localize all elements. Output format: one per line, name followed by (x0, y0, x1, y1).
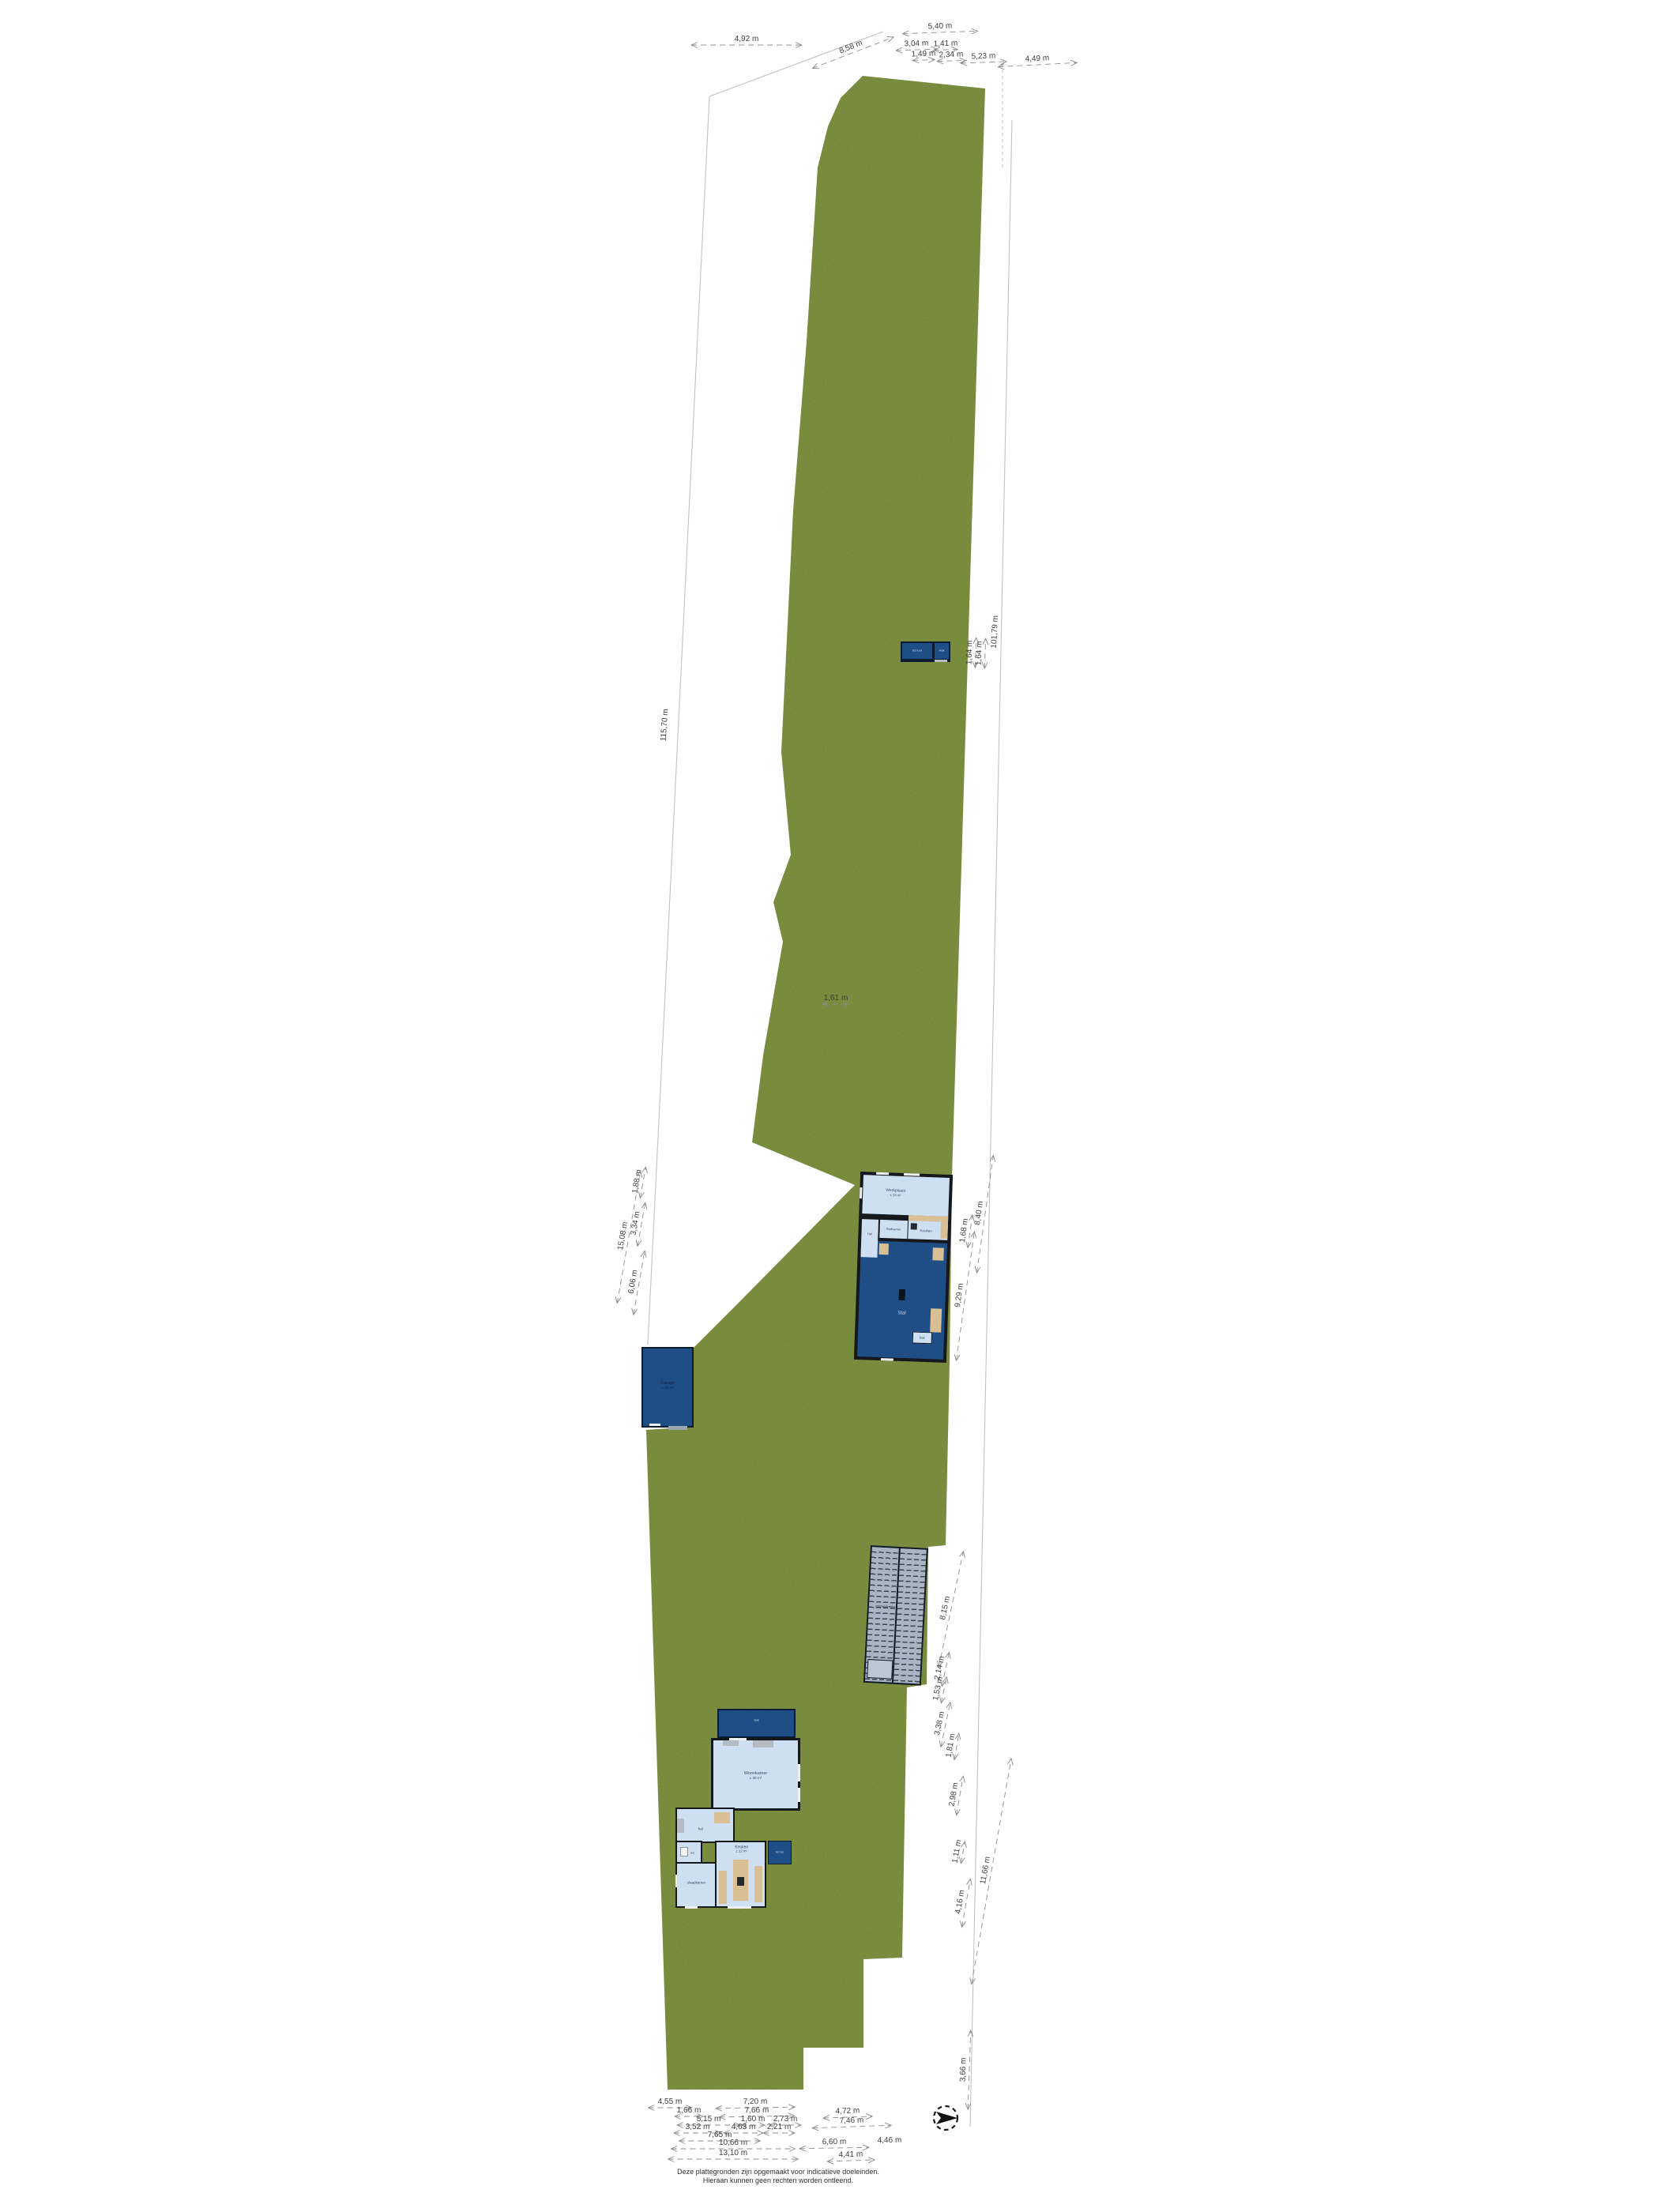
window (685, 1906, 698, 1909)
house-patio: terras (768, 1841, 792, 1864)
dimension: 1,68 m (957, 1213, 972, 1247)
dimension-label: 4,46 m (878, 2136, 902, 2146)
room-label-badkamer: Badkamer (886, 1227, 901, 1231)
dimension-label: 3,52 m (686, 2123, 710, 2131)
dimension-line (812, 2125, 891, 2127)
dimension-line (937, 60, 965, 61)
dimension-label: 7,46 m (839, 2116, 863, 2125)
dimension-label: 1,61 m (824, 994, 848, 1003)
dimension: 4,46 m (878, 2136, 902, 2146)
room-label-stal: Stal (897, 1311, 906, 1316)
dimension-label: 7,20 m (743, 2097, 768, 2107)
dimension-label: 9,29 m (954, 1283, 965, 1308)
dimension-line (903, 31, 978, 33)
dimension: 1,64 m (974, 638, 985, 668)
dimension: 2,34 m (937, 50, 965, 61)
room-label-keuken: Keuken± 12 m² (735, 1845, 748, 1854)
door-mat (677, 1819, 684, 1833)
counter (754, 1866, 762, 1902)
dimension-line (827, 2160, 875, 2161)
counter (908, 1215, 948, 1222)
dimension-line (998, 62, 1077, 66)
room-label-werkplaats: Werkplaats± 24 m² (886, 1189, 905, 1198)
window (729, 1738, 747, 1740)
door-mat (932, 1247, 944, 1260)
dimension: 115,70 m (660, 709, 671, 742)
dimension-label: 1,68 m (958, 1218, 970, 1243)
barn-room-werkplaats: Werkplaats± 24 m² (862, 1175, 950, 1217)
north-shed-right-label: Hok (939, 649, 944, 653)
dimension: 5,40 m (902, 21, 977, 33)
barn-floorplan: Werkplaats± 24 m² Keuken Badkamer Stal H… (854, 1172, 953, 1363)
dimension-label: 115,70 m (660, 709, 671, 742)
door-mat (753, 1740, 773, 1747)
dimension: 13,10 m (668, 2149, 799, 2159)
solar-panels: zonnepanelen (863, 1545, 928, 1686)
dimension: 4,16 m (952, 1877, 971, 1927)
disclaimer-line1: Deze plattegronden zijn opgemaakt voor i… (620, 2168, 936, 2176)
garage-label: Garage± 20 m² (660, 1381, 675, 1390)
barn-room-keuken: Keuken (908, 1215, 948, 1240)
door (881, 1358, 893, 1361)
barn-room-hal: Hal (860, 1219, 878, 1258)
dimension-label: 11,66 m (979, 1856, 992, 1885)
counter (719, 1871, 727, 1904)
dimension: 3,66 m (957, 2030, 970, 2109)
disclaimer-line2: Hieraan kunnen geen rechten worden ontle… (620, 2176, 936, 2185)
dimension-label: 5,23 m (971, 51, 995, 61)
room-label-wc: wc (690, 1852, 694, 1856)
north-shed-step (935, 660, 947, 662)
stove (737, 1877, 744, 1886)
dimension: 4,41 m (827, 2150, 875, 2161)
garage-step (668, 1426, 687, 1430)
north-shed-left-label: Schuur (912, 649, 923, 653)
solar-label: zonnepanelen (872, 1604, 899, 1609)
dimension: 10,66 m (671, 2139, 796, 2149)
dimension-line (961, 62, 1006, 63)
dimension-label: 1,66 m (677, 2106, 702, 2115)
kitchen-island (733, 1860, 748, 1901)
appliance (911, 1223, 917, 1229)
room-label-barn-keuken: Keuken (920, 1228, 931, 1233)
house-room-hal: hal (675, 1808, 735, 1843)
counter (940, 1222, 948, 1239)
solar-inverter-cell (867, 1659, 893, 1680)
dimension: 101,79 m (990, 615, 1000, 649)
dimension: 4,49 m (998, 52, 1078, 66)
house-room-keuken: Keuken± 12 m² (715, 1841, 766, 1908)
roof-label: dak (754, 1719, 758, 1723)
dimension: 1,81 m (944, 1732, 959, 1760)
dimension: 1,88 m (630, 1165, 646, 1198)
dimension-label: 7,66 m (745, 2106, 769, 2116)
house-room-woonkamer: Woonkamer± 30 m² (711, 1738, 800, 1811)
wardrobe (714, 1812, 730, 1823)
window (675, 1875, 678, 1887)
dimension-label: 4,92 m (735, 35, 759, 43)
room-label-woonkamer: Woonkamer± 30 m² (744, 1771, 768, 1781)
post (899, 1289, 905, 1300)
room-label-hal: hal (698, 1826, 703, 1830)
dimension: 2,21 m (763, 2123, 795, 2133)
dimension-label: 1,64 m (974, 641, 984, 665)
dimension-label: 8,15 m (939, 1595, 952, 1620)
barn-room-stal: Stal (857, 1240, 947, 1360)
dimension-label: 3,38 m (933, 1710, 946, 1736)
dimension-label: 5,40 m (927, 21, 952, 31)
door-mat (879, 1243, 889, 1255)
dimension: 8,15 m (929, 1549, 964, 1667)
house-room-wc: wc (675, 1841, 702, 1864)
dimension-label: 10,66 m (719, 2139, 747, 2147)
dimension: 7,46 m (812, 2115, 891, 2127)
patio-label: terras (776, 1851, 784, 1855)
dimension: 1,41 m (933, 39, 957, 50)
north-shed: Schuur Hok (901, 641, 950, 662)
window (798, 1764, 800, 1781)
dimension-label: 1,64 m (965, 640, 974, 664)
dimension-label: 2,34 m (939, 50, 963, 59)
room-label-bak: Bak (920, 1336, 925, 1340)
house-roof-deck: dak (717, 1709, 796, 1738)
north-shed-left-cell: Schuur (902, 643, 932, 659)
window (904, 1173, 920, 1176)
dimension-label: 4,63 m (732, 2123, 756, 2131)
door-mat (723, 1740, 739, 1746)
dimension-line (912, 60, 935, 61)
dimension-label: 3,66 m (958, 2057, 968, 2082)
door-mat (930, 1308, 942, 1332)
dimension: 1,11 m (951, 1839, 965, 1864)
dimension-label: 1,41 m (933, 39, 957, 48)
dimension-line (984, 638, 985, 668)
garage-door (649, 1424, 660, 1426)
dimension: 6,60 m (799, 2137, 869, 2149)
dimension: 11,66 m (961, 1757, 1011, 1984)
barn-room-bak: Bak (912, 1331, 933, 1344)
disclaimer: Deze plattegronden zijn opgemaakt voor i… (620, 2168, 936, 2185)
dimension-label: 8,58 m (838, 39, 863, 55)
dimension-line (968, 2030, 970, 2109)
dimension-label: 3,04 m (904, 39, 928, 48)
dimension-label: 2,21 m (767, 2123, 792, 2131)
dimension-label: 4,41 m (838, 2150, 863, 2159)
window (876, 1172, 889, 1176)
house-room-slaapkamer: slaapkamer (675, 1862, 717, 1908)
compass-icon (934, 2106, 957, 2130)
window (860, 1187, 862, 1198)
dimension: 8,58 m (809, 28, 893, 69)
north-shed-right-cell: Hok (935, 643, 949, 659)
dimension-label: 13,10 m (719, 2149, 747, 2157)
dimension-label: 4,55 m (658, 2097, 683, 2106)
dimension-label: 8,40 m (973, 1201, 985, 1226)
dimension: 2,98 m (946, 1774, 963, 1815)
dimension: 3,34 m (627, 1201, 645, 1246)
barn-room-badkamer: Badkamer (879, 1220, 908, 1239)
site-plan-svg: 4,92 m8,58 m5,40 m3,04 m1,41 m1,49 m2,34… (0, 0, 1659, 2212)
window (728, 1906, 751, 1909)
dimension-line (799, 2147, 869, 2149)
dimension: 4,92 m (691, 35, 802, 45)
house-floorplan: dak Woonkamer± 30 m² hal wc slaapkamer (675, 1709, 803, 1908)
room-label-slaapkamer: slaapkamer (687, 1881, 705, 1885)
window (798, 1788, 800, 1802)
site-plan: 4,92 m8,58 m5,40 m3,04 m1,41 m1,49 m2,34… (0, 0, 1659, 2212)
dimension: 3,04 m (896, 39, 937, 51)
dimension-label: 1,49 m (911, 49, 935, 58)
room-label-barn-hal: Hal (867, 1232, 872, 1236)
dimension: 5,23 m (961, 51, 1006, 63)
garage: Garage± 20 m² (641, 1347, 694, 1428)
dimension: 1,49 m (911, 49, 935, 60)
dimension-label: 4,49 m (1025, 54, 1049, 64)
dimension: 6,06 m (623, 1249, 645, 1315)
toilet (680, 1847, 688, 1856)
dimension-label: 4,72 m (835, 2106, 860, 2116)
dimension-label: 6,60 m (822, 2138, 847, 2147)
dimension-label: 4,16 m (954, 1890, 966, 1915)
dimension-label: 15,08 m (616, 1221, 630, 1251)
dimension-label: 101,79 m (990, 615, 1000, 649)
